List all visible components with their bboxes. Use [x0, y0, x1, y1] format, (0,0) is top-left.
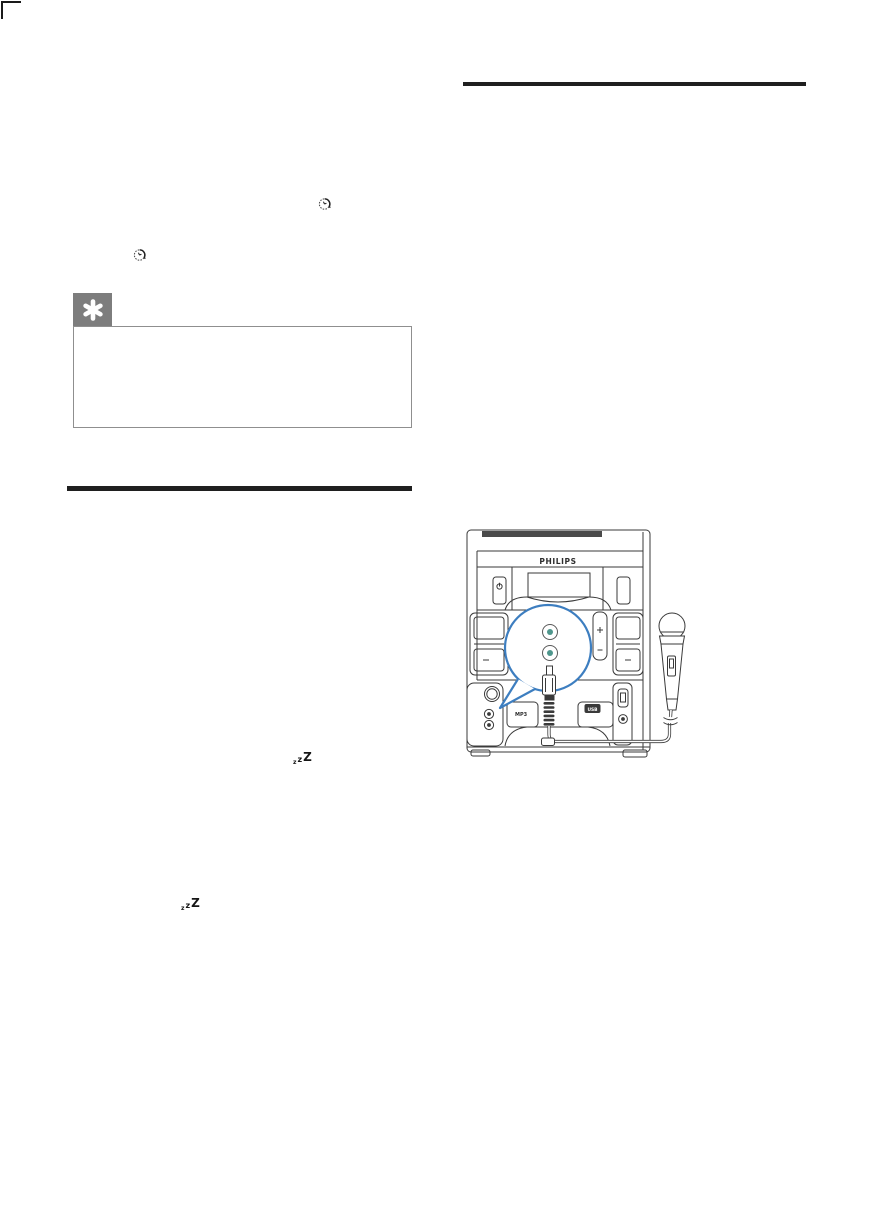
- manual-page: z z Z z z Z: [0, 0, 875, 1224]
- sleep-z-mid: z: [186, 902, 191, 910]
- sleep-timer-icon: z z Z: [181, 897, 200, 912]
- front-right-panel: [613, 683, 632, 745]
- timer-clock-icon: [317, 196, 332, 211]
- asterisk-tip-icon: [82, 299, 104, 321]
- right-speaker: [613, 613, 643, 675]
- unit-foot: [471, 750, 490, 756]
- microphone-head: [659, 613, 685, 639]
- front-left-panel: [467, 683, 503, 746]
- usb-badge-label: USB: [587, 707, 598, 713]
- unit-top-face: [482, 531, 602, 537]
- section-divider: [67, 486, 412, 491]
- audio-plug: [543, 666, 556, 726]
- sleep-z-large: Z: [191, 897, 200, 909]
- deck-control: [593, 612, 607, 660]
- tip-box: [73, 326, 412, 428]
- sleep-z-mid: z: [298, 756, 303, 764]
- power-button: [493, 577, 506, 604]
- mic-socket-2: [547, 650, 553, 656]
- eject-button: [617, 577, 630, 604]
- tip-tab: [73, 293, 112, 326]
- left-speaker: [470, 613, 508, 675]
- sleep-timer-icon: z z Z: [293, 751, 312, 766]
- mic-cable: [542, 710, 678, 746]
- cable-break-mark: [664, 718, 678, 720]
- microphone: [659, 613, 685, 710]
- usb-port: [618, 689, 628, 707]
- sleep-z-small: z: [181, 906, 185, 912]
- unit-foot: [623, 750, 647, 757]
- crop-corner-mark: [1, 1, 21, 19]
- cable-clip: [542, 738, 555, 746]
- device-illustration: MP3 USB PHILIPS: [455, 520, 805, 790]
- brand-logo: PHILIPS: [539, 557, 576, 566]
- timer-clock-icon: [132, 247, 147, 262]
- section-divider: [463, 82, 806, 86]
- mic-socket-1: [547, 629, 553, 635]
- sleep-z-large: Z: [303, 751, 312, 763]
- mp3-label: MP3: [515, 712, 528, 718]
- sleep-z-small: z: [293, 760, 297, 766]
- display-panel: [528, 573, 590, 597]
